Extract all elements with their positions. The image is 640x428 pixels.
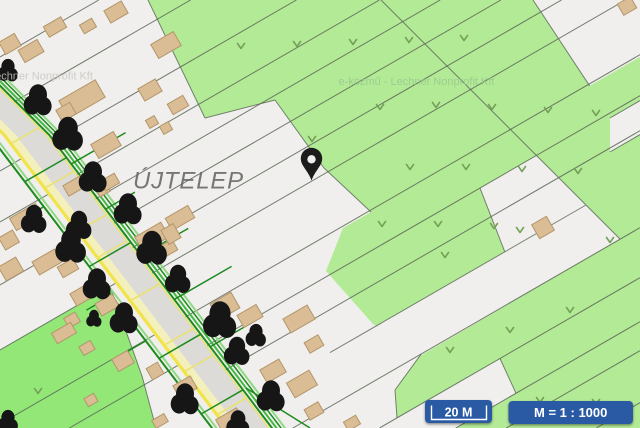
svg-text:e-közmű - Lechner Nonprofit Kf: e-közmű - Lechner Nonprofit Kft <box>339 76 495 88</box>
svg-text:20 M: 20 M <box>445 406 473 420</box>
svg-text:ÚJTELEP: ÚJTELEP <box>133 168 244 195</box>
svg-text:e-közmű - Lechner Nonprofit Kf: e-közmű - Lechner Nonprofit Kft <box>0 71 93 83</box>
svg-text:M = 1 : 1000: M = 1 : 1000 <box>534 405 607 420</box>
